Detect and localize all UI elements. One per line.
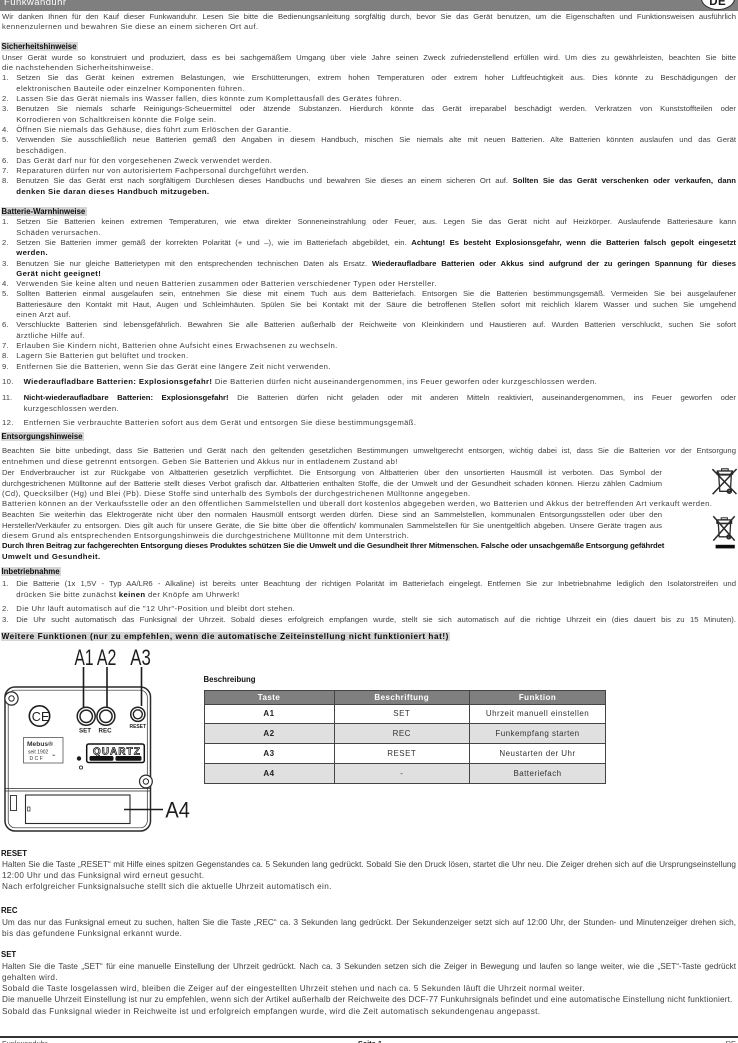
svg-text:A3: A3 — [130, 645, 151, 670]
svg-text:A2: A2 — [97, 645, 117, 670]
svg-text:A4: A4 — [165, 797, 190, 822]
svg-text:⌁: ⌁ — [52, 753, 56, 759]
svg-text:seit 1902: seit 1902 — [28, 750, 49, 756]
svg-text:REC: REC — [99, 728, 113, 735]
svg-text:A1: A1 — [75, 645, 94, 670]
svg-text:QUARTZ: QUARTZ — [93, 747, 141, 758]
svg-text:RESET: RESET — [130, 724, 147, 730]
svg-text:CE: CE — [32, 710, 50, 724]
svg-text:DCF: DCF — [30, 756, 45, 762]
svg-text:Mebus®: Mebus® — [27, 740, 53, 748]
svg-text:SET: SET — [79, 728, 91, 735]
